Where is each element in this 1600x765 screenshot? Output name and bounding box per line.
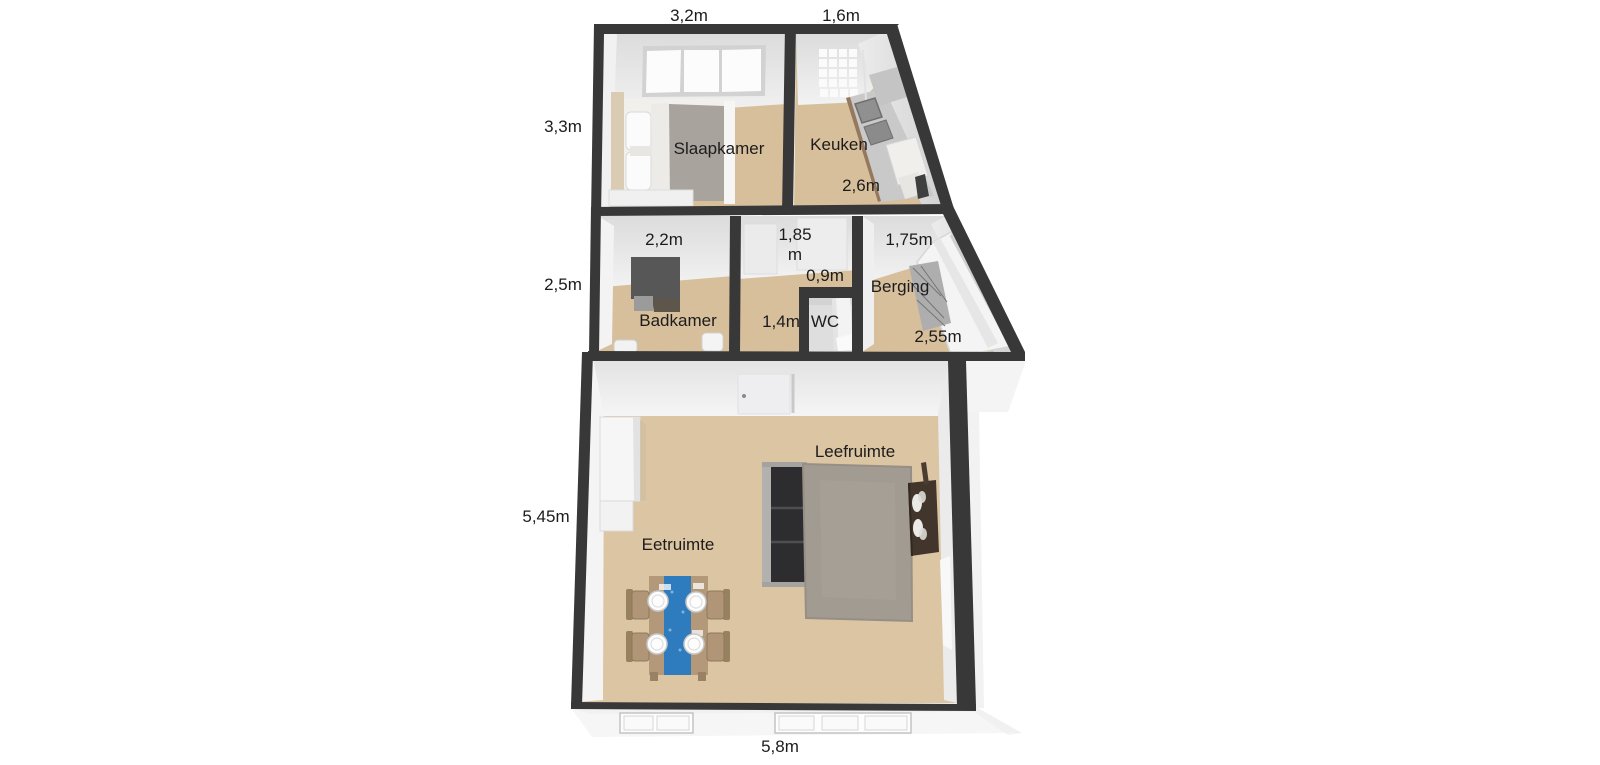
svg-text:Slaapkamer: Slaapkamer: [674, 139, 765, 158]
svg-text:3,3m: 3,3m: [544, 117, 582, 136]
svg-text:Badkamer: Badkamer: [639, 311, 717, 330]
svg-text:2,5m: 2,5m: [544, 275, 582, 294]
svg-text:0,9m: 0,9m: [806, 266, 844, 285]
svg-text:2,6m: 2,6m: [842, 176, 880, 195]
svg-text:5,45m: 5,45m: [522, 507, 569, 526]
svg-text:3,2m: 3,2m: [670, 6, 708, 25]
svg-text:1,4m: 1,4m: [762, 312, 800, 331]
svg-text:Berging: Berging: [871, 277, 930, 296]
svg-text:5,8m: 5,8m: [761, 737, 799, 756]
svg-text:2,55m: 2,55m: [914, 327, 961, 346]
svg-text:1,75m: 1,75m: [885, 230, 932, 249]
svg-text:m: m: [788, 245, 802, 264]
svg-text:2,2m: 2,2m: [645, 230, 683, 249]
svg-text:1,85: 1,85: [778, 225, 811, 244]
svg-text:Eetruimte: Eetruimte: [642, 535, 715, 554]
svg-text:Keuken: Keuken: [810, 135, 868, 154]
svg-text:WC: WC: [811, 312, 839, 331]
svg-text:Leefruimte: Leefruimte: [815, 442, 895, 461]
svg-text:1,6m: 1,6m: [822, 6, 860, 25]
